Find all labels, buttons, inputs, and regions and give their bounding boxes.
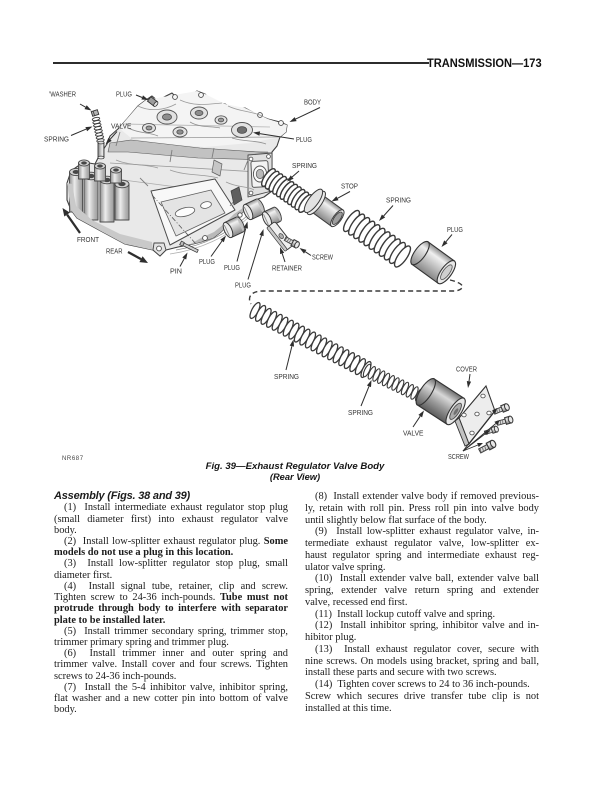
svg-text:STOP: STOP <box>341 182 358 191</box>
svg-text:SPRING: SPRING <box>44 135 69 144</box>
svg-text:PLUG: PLUG <box>224 263 240 272</box>
svg-text:SPRING: SPRING <box>292 161 317 170</box>
svg-text:COVER: COVER <box>456 365 477 374</box>
svg-text:PLUG: PLUG <box>447 225 463 234</box>
svg-text:NR687: NR687 <box>62 456 84 462</box>
svg-text:VALVE: VALVE <box>403 429 424 438</box>
svg-text:PLUG: PLUG <box>199 257 215 266</box>
svg-text:SPRING: SPRING <box>386 196 411 205</box>
svg-text:BODY: BODY <box>304 98 321 107</box>
svg-text:SCREW: SCREW <box>312 253 333 262</box>
svg-text:VALVE: VALVE <box>111 122 132 131</box>
svg-text:PIN: PIN <box>170 267 182 276</box>
svg-text:FRONT: FRONT <box>77 235 99 244</box>
svg-text:PLUG: PLUG <box>235 281 251 290</box>
svg-text:SPRING: SPRING <box>274 372 299 381</box>
svg-text:’WASHER: ’WASHER <box>49 90 76 99</box>
svg-text:SPRING: SPRING <box>348 408 373 417</box>
svg-text:PLUG: PLUG <box>116 90 132 99</box>
svg-text:PLUG: PLUG <box>296 135 312 144</box>
svg-text:SCREW: SCREW <box>448 452 469 461</box>
svg-text:REAR: REAR <box>106 247 123 256</box>
svg-text:RETAINER: RETAINER <box>272 264 302 273</box>
